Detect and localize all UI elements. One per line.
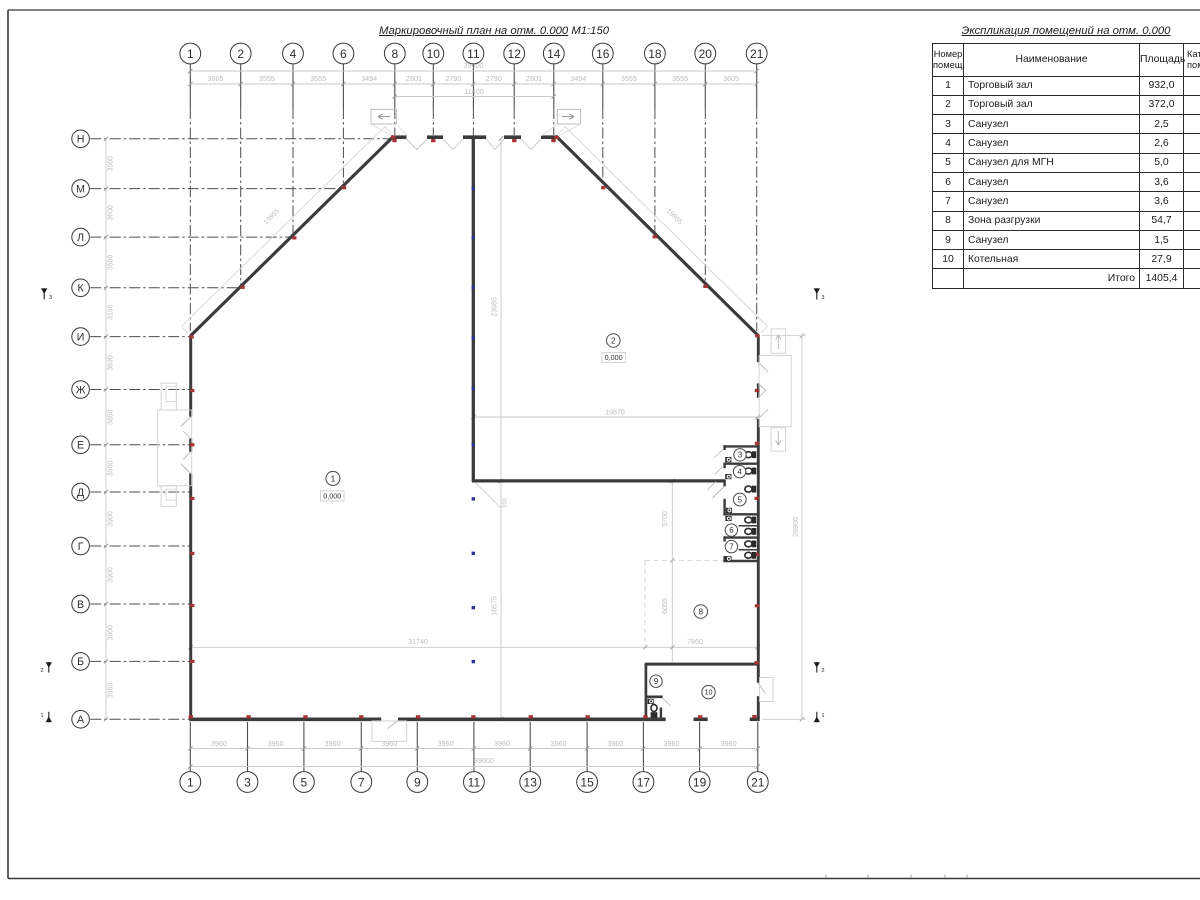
svg-text:21: 21 [751,775,765,789]
svg-text:3605: 3605 [208,74,224,83]
svg-text:1: 1 [331,473,336,483]
svg-text:3: 3 [738,451,742,460]
svg-text:3960: 3960 [108,683,115,698]
svg-text:3960: 3960 [721,739,737,748]
svg-text:5: 5 [738,495,743,504]
svg-text:1: 1 [822,713,825,719]
svg-text:3555: 3555 [259,74,275,83]
svg-text:К: К [78,283,85,295]
svg-text:3900: 3900 [108,567,115,582]
svg-text:1: 1 [41,713,44,719]
svg-text:15: 15 [580,775,594,789]
svg-text:26900: 26900 [792,517,800,537]
svg-text:0,000: 0,000 [605,353,623,362]
svg-text:9: 9 [654,677,658,686]
svg-text:3960: 3960 [664,739,680,748]
svg-text:0,000: 0,000 [323,492,341,501]
svg-text:4: 4 [290,47,297,61]
svg-text:Е: Е [77,440,84,452]
svg-text:19955: 19955 [665,208,684,227]
svg-text:19: 19 [693,775,707,789]
svg-text:7860: 7860 [687,638,703,646]
svg-text:3555: 3555 [310,74,326,83]
svg-text:6: 6 [340,47,347,61]
svg-text:3190: 3190 [108,304,115,319]
svg-text:2801: 2801 [406,74,422,83]
svg-text:Г: Г [78,541,84,553]
svg-text:8: 8 [699,607,704,616]
svg-text:3900: 3900 [108,625,115,640]
svg-text:10: 10 [427,47,441,61]
svg-text:Б: Б [77,656,84,668]
svg-text:2: 2 [611,336,616,345]
svg-text:М: М [76,183,85,195]
svg-text:10: 10 [705,688,713,697]
svg-text:3600: 3600 [108,205,115,220]
svg-text:3690: 3690 [108,355,115,370]
svg-text:31740: 31740 [408,638,428,646]
svg-text:Н: Н [77,134,85,146]
svg-text:3960: 3960 [551,739,567,748]
svg-text:Ж: Ж [76,384,86,396]
svg-text:1: 1 [187,47,194,61]
svg-text:3960: 3960 [211,739,227,748]
svg-text:2: 2 [237,47,244,61]
svg-text:20: 20 [699,47,713,61]
svg-text:100: 100 [503,497,509,508]
svg-text:23985: 23985 [492,297,499,317]
svg-text:21: 21 [750,47,764,61]
svg-text:В: В [77,599,84,611]
svg-text:3555: 3555 [672,74,688,83]
svg-text:3494: 3494 [570,74,586,83]
svg-text:2: 2 [822,668,825,674]
svg-text:5: 5 [301,775,308,789]
svg-text:А: А [77,714,85,726]
svg-text:16: 16 [596,47,610,61]
svg-text:3960: 3960 [607,739,623,748]
svg-text:17: 17 [637,775,651,789]
svg-text:3960: 3960 [494,739,510,748]
svg-text:6055: 6055 [662,598,669,614]
svg-text:12: 12 [508,47,522,61]
svg-text:3850: 3850 [108,409,115,424]
svg-text:Д: Д [77,487,84,499]
svg-text:13: 13 [524,775,538,789]
svg-text:3555: 3555 [621,74,637,83]
svg-text:3960: 3960 [325,739,341,748]
svg-text:3900: 3900 [108,511,115,526]
svg-text:2790: 2790 [486,74,502,83]
svg-text:3: 3 [244,775,251,789]
svg-text:3960: 3960 [268,739,284,748]
svg-text:И: И [77,331,85,343]
svg-text:39600: 39600 [474,756,494,765]
svg-text:14: 14 [547,47,561,61]
svg-text:9: 9 [414,775,421,789]
svg-text:7: 7 [729,542,733,551]
svg-text:2801: 2801 [526,74,542,83]
svg-text:7: 7 [358,775,365,789]
svg-text:19870: 19870 [605,408,625,416]
svg-text:3: 3 [49,295,52,301]
svg-text:11400: 11400 [464,87,483,96]
svg-text:8: 8 [391,47,398,61]
svg-text:3: 3 [822,295,825,301]
svg-text:16575: 16575 [492,596,499,616]
svg-text:Л: Л [77,232,84,244]
svg-text:5700: 5700 [662,511,669,527]
svg-text:19955: 19955 [263,208,282,227]
svg-text:1: 1 [187,775,194,789]
svg-text:3900: 3900 [108,461,115,476]
svg-text:3960: 3960 [438,739,454,748]
svg-text:4: 4 [737,467,742,476]
svg-text:3960: 3960 [381,739,397,748]
svg-text:2: 2 [41,668,44,674]
svg-text:18: 18 [648,47,662,61]
svg-text:3500: 3500 [108,255,115,270]
svg-text:3605: 3605 [723,74,739,83]
svg-text:3494: 3494 [361,74,377,83]
svg-text:11: 11 [467,47,480,61]
svg-text:11: 11 [468,775,481,789]
svg-text:3500: 3500 [108,156,115,171]
svg-text:6: 6 [729,526,733,535]
svg-text:2790: 2790 [445,74,461,83]
